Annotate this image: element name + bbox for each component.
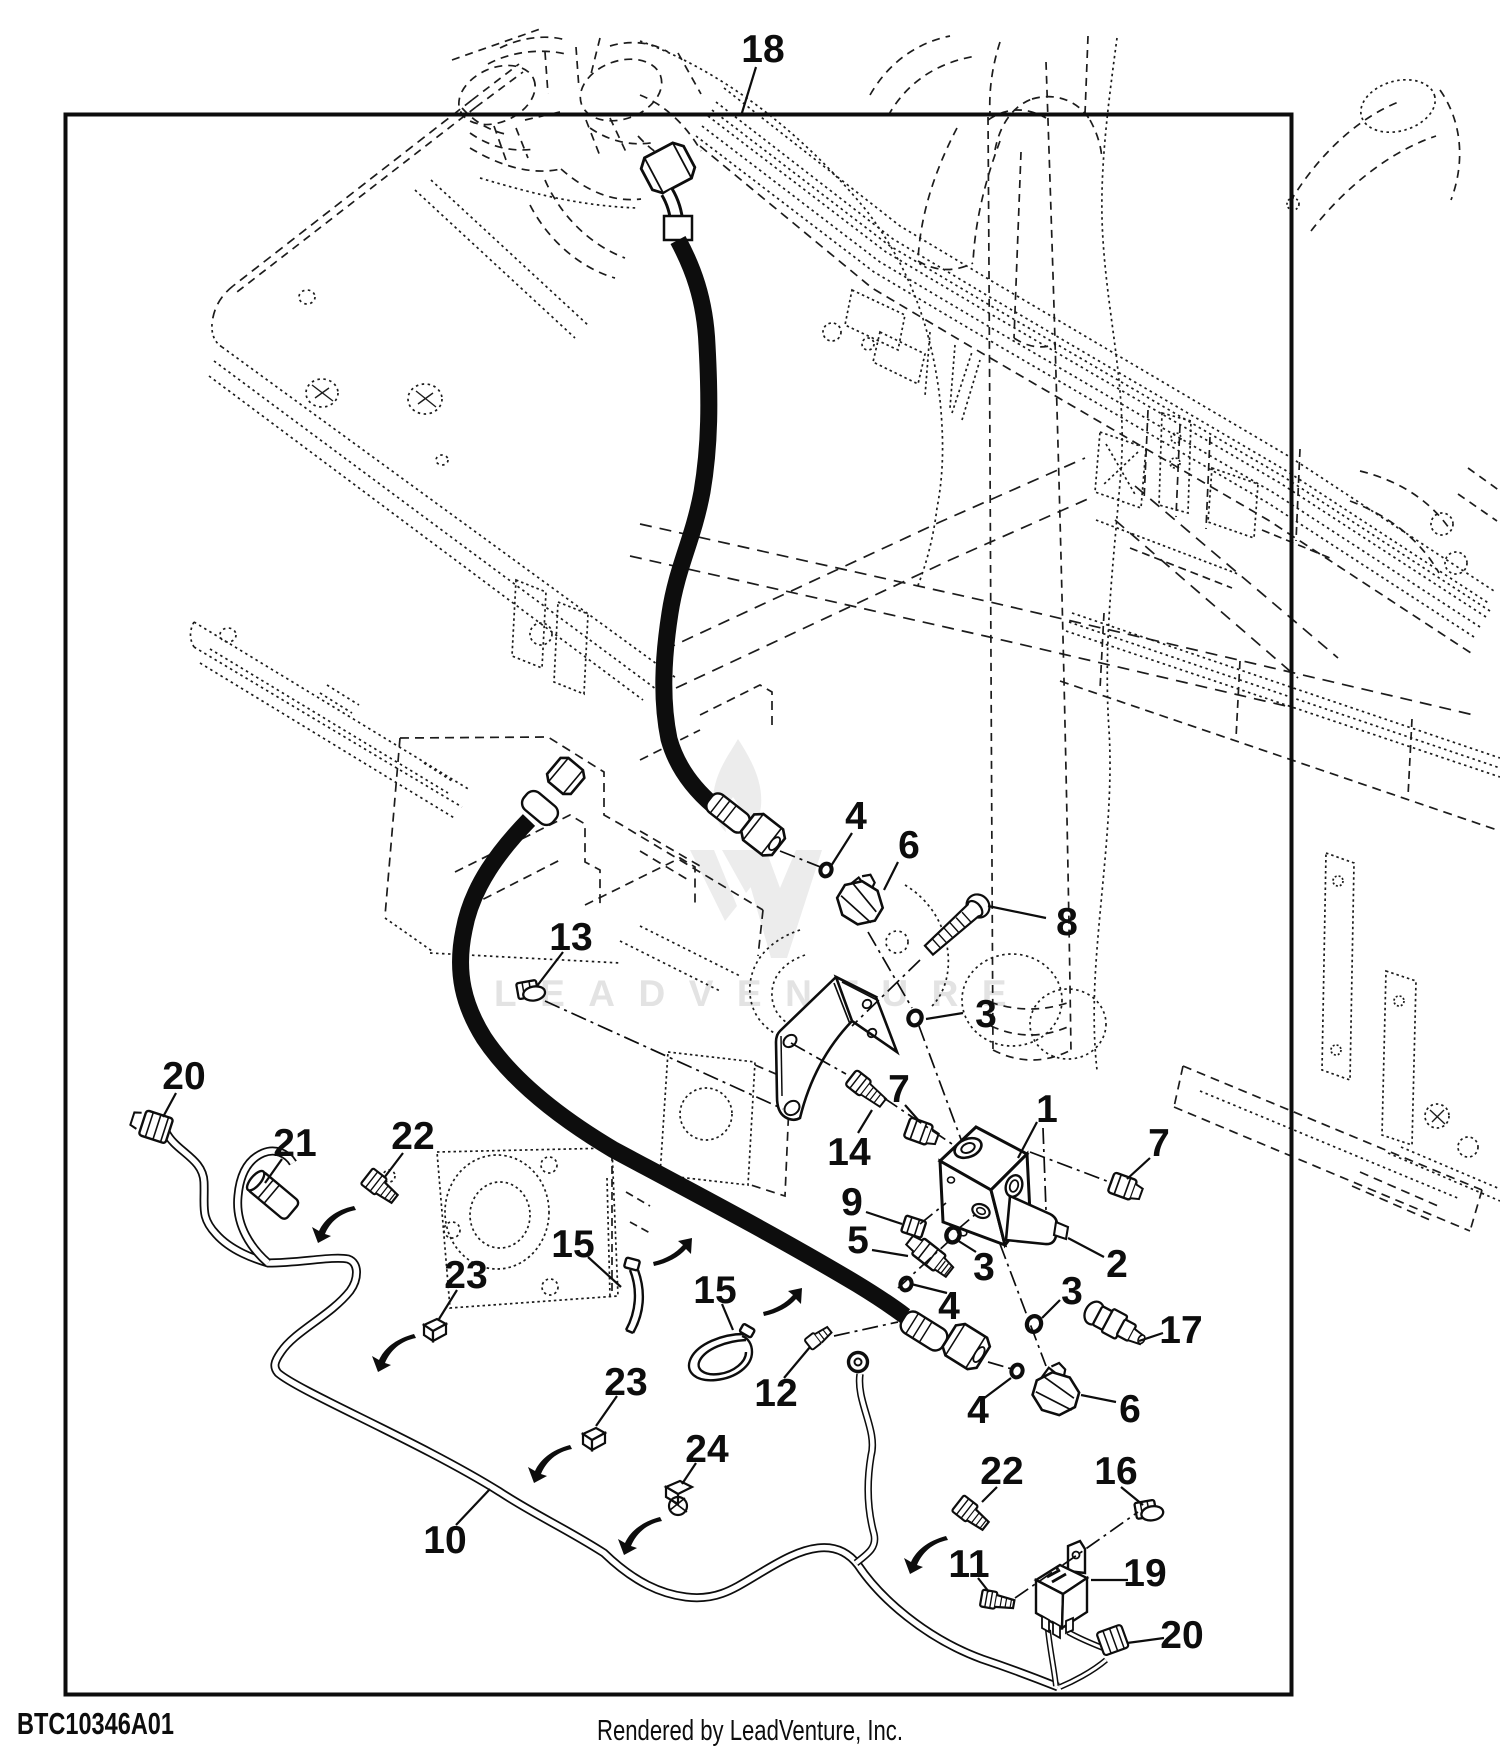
svg-text:6: 6 xyxy=(1119,1388,1141,1431)
svg-text:23: 23 xyxy=(604,1361,647,1404)
svg-text:18: 18 xyxy=(741,28,784,71)
svg-text:15: 15 xyxy=(551,1223,594,1266)
svg-text:24: 24 xyxy=(685,1428,729,1471)
svg-text:12: 12 xyxy=(754,1372,797,1415)
svg-text:20: 20 xyxy=(1160,1614,1203,1657)
svg-text:13: 13 xyxy=(549,916,592,959)
svg-text:4: 4 xyxy=(845,795,867,838)
svg-text:15: 15 xyxy=(693,1269,736,1312)
svg-text:14: 14 xyxy=(827,1131,871,1174)
svg-text:4: 4 xyxy=(938,1285,960,1328)
svg-text:BTC10346A01: BTC10346A01 xyxy=(17,1706,174,1741)
svg-text:22: 22 xyxy=(980,1450,1023,1493)
svg-text:7: 7 xyxy=(1148,1122,1170,1165)
svg-text:3: 3 xyxy=(1061,1270,1083,1313)
svg-text:1: 1 xyxy=(1036,1088,1058,1131)
svg-text:20: 20 xyxy=(162,1055,205,1098)
svg-text:21: 21 xyxy=(273,1122,316,1165)
svg-text:19: 19 xyxy=(1123,1552,1166,1595)
svg-text:23: 23 xyxy=(444,1254,487,1297)
svg-text:17: 17 xyxy=(1159,1309,1202,1352)
svg-text:6: 6 xyxy=(898,824,920,867)
svg-text:2: 2 xyxy=(1106,1243,1128,1286)
svg-text:22: 22 xyxy=(391,1115,434,1158)
svg-text:5: 5 xyxy=(847,1219,869,1262)
svg-text:Rendered by LeadVenture, Inc.: Rendered by LeadVenture, Inc. xyxy=(597,1715,903,1747)
svg-text:10: 10 xyxy=(423,1519,466,1562)
svg-text:3: 3 xyxy=(973,1246,995,1289)
svg-text:9: 9 xyxy=(841,1181,863,1224)
svg-text:3: 3 xyxy=(975,993,997,1036)
svg-text:7: 7 xyxy=(888,1068,910,1111)
svg-text:LEADVENTURE: LEADVENTURE xyxy=(494,973,1030,1014)
svg-text:11: 11 xyxy=(948,1543,989,1586)
svg-text:16: 16 xyxy=(1094,1450,1137,1493)
svg-text:8: 8 xyxy=(1056,901,1078,944)
svg-text:4: 4 xyxy=(967,1389,989,1432)
